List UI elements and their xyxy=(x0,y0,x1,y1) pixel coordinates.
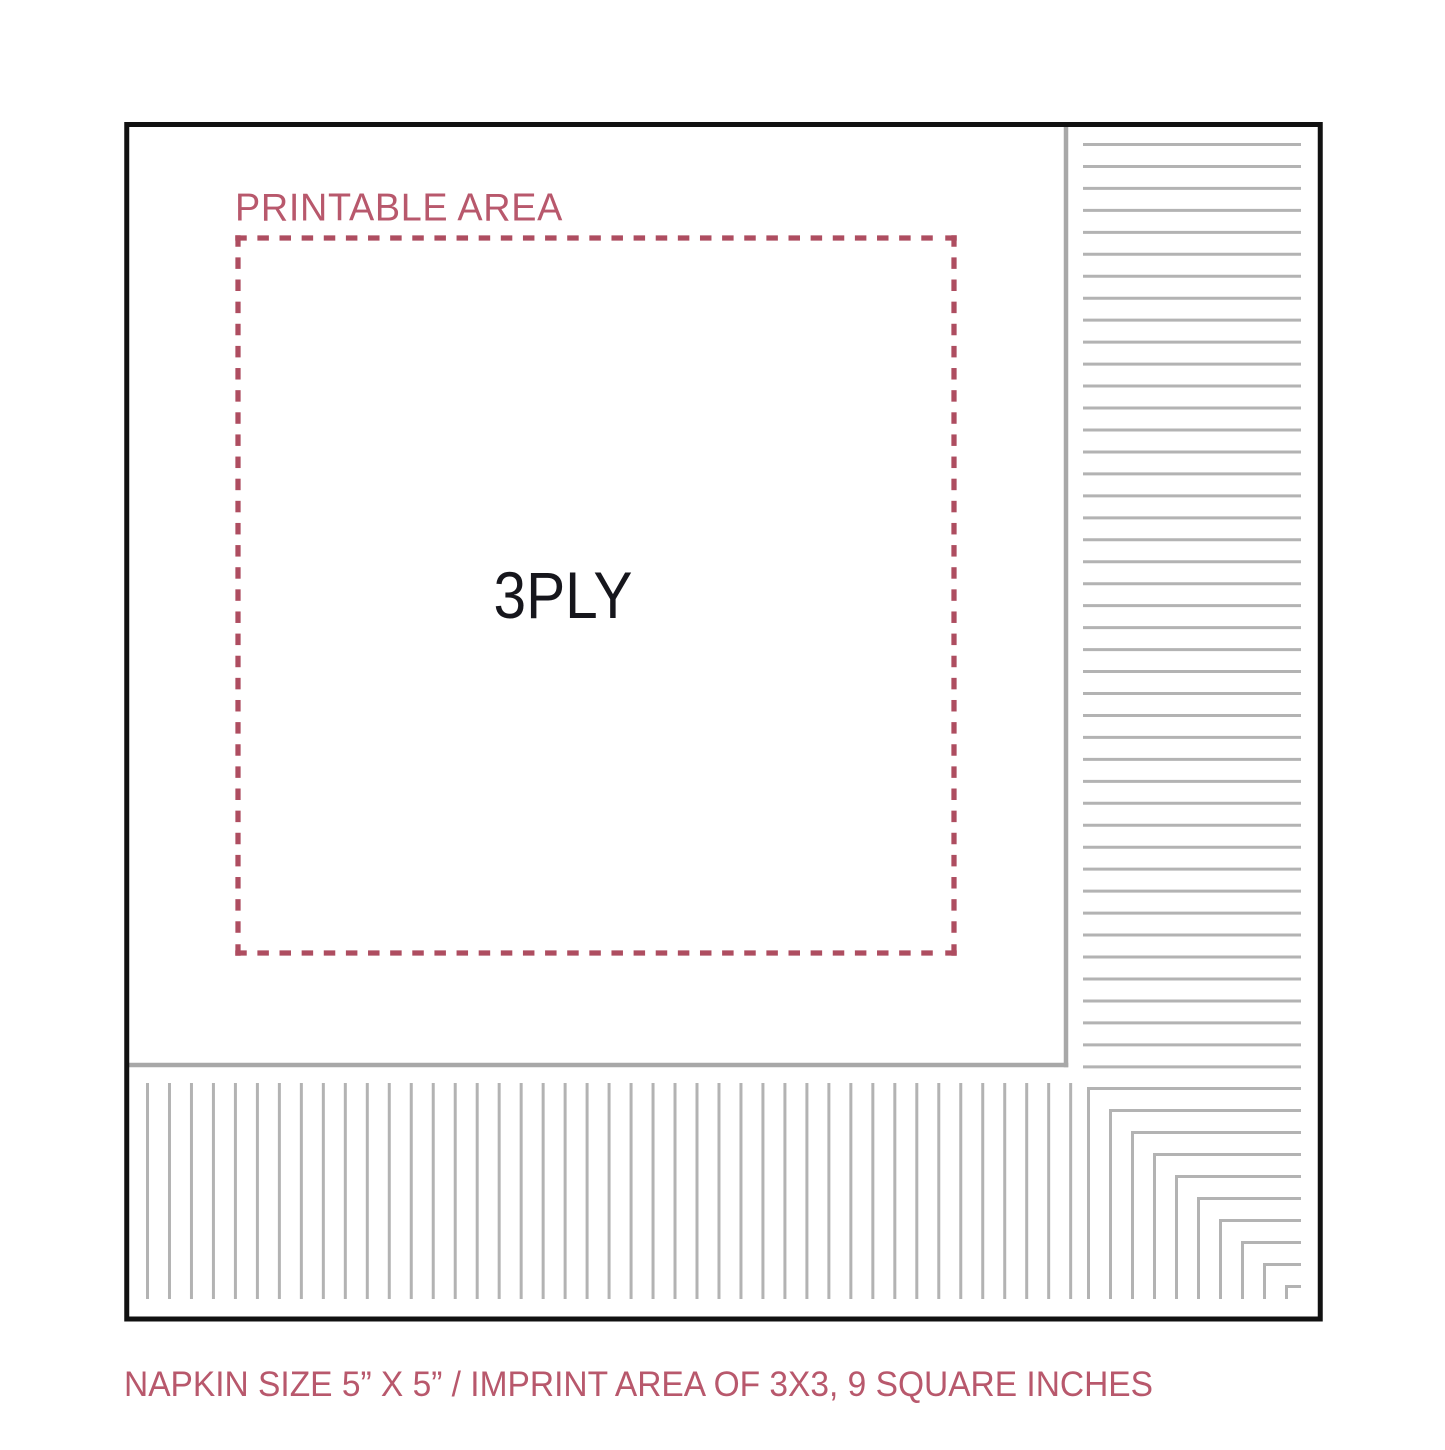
svg-text:PRINTABLE AREA: PRINTABLE AREA xyxy=(235,187,563,230)
svg-text:3PLY: 3PLY xyxy=(494,558,633,632)
svg-text:NAPKIN SIZE 5” X 5” / IMPRINT: NAPKIN SIZE 5” X 5” / IMPRINT AREA OF 3X… xyxy=(124,1364,1153,1404)
